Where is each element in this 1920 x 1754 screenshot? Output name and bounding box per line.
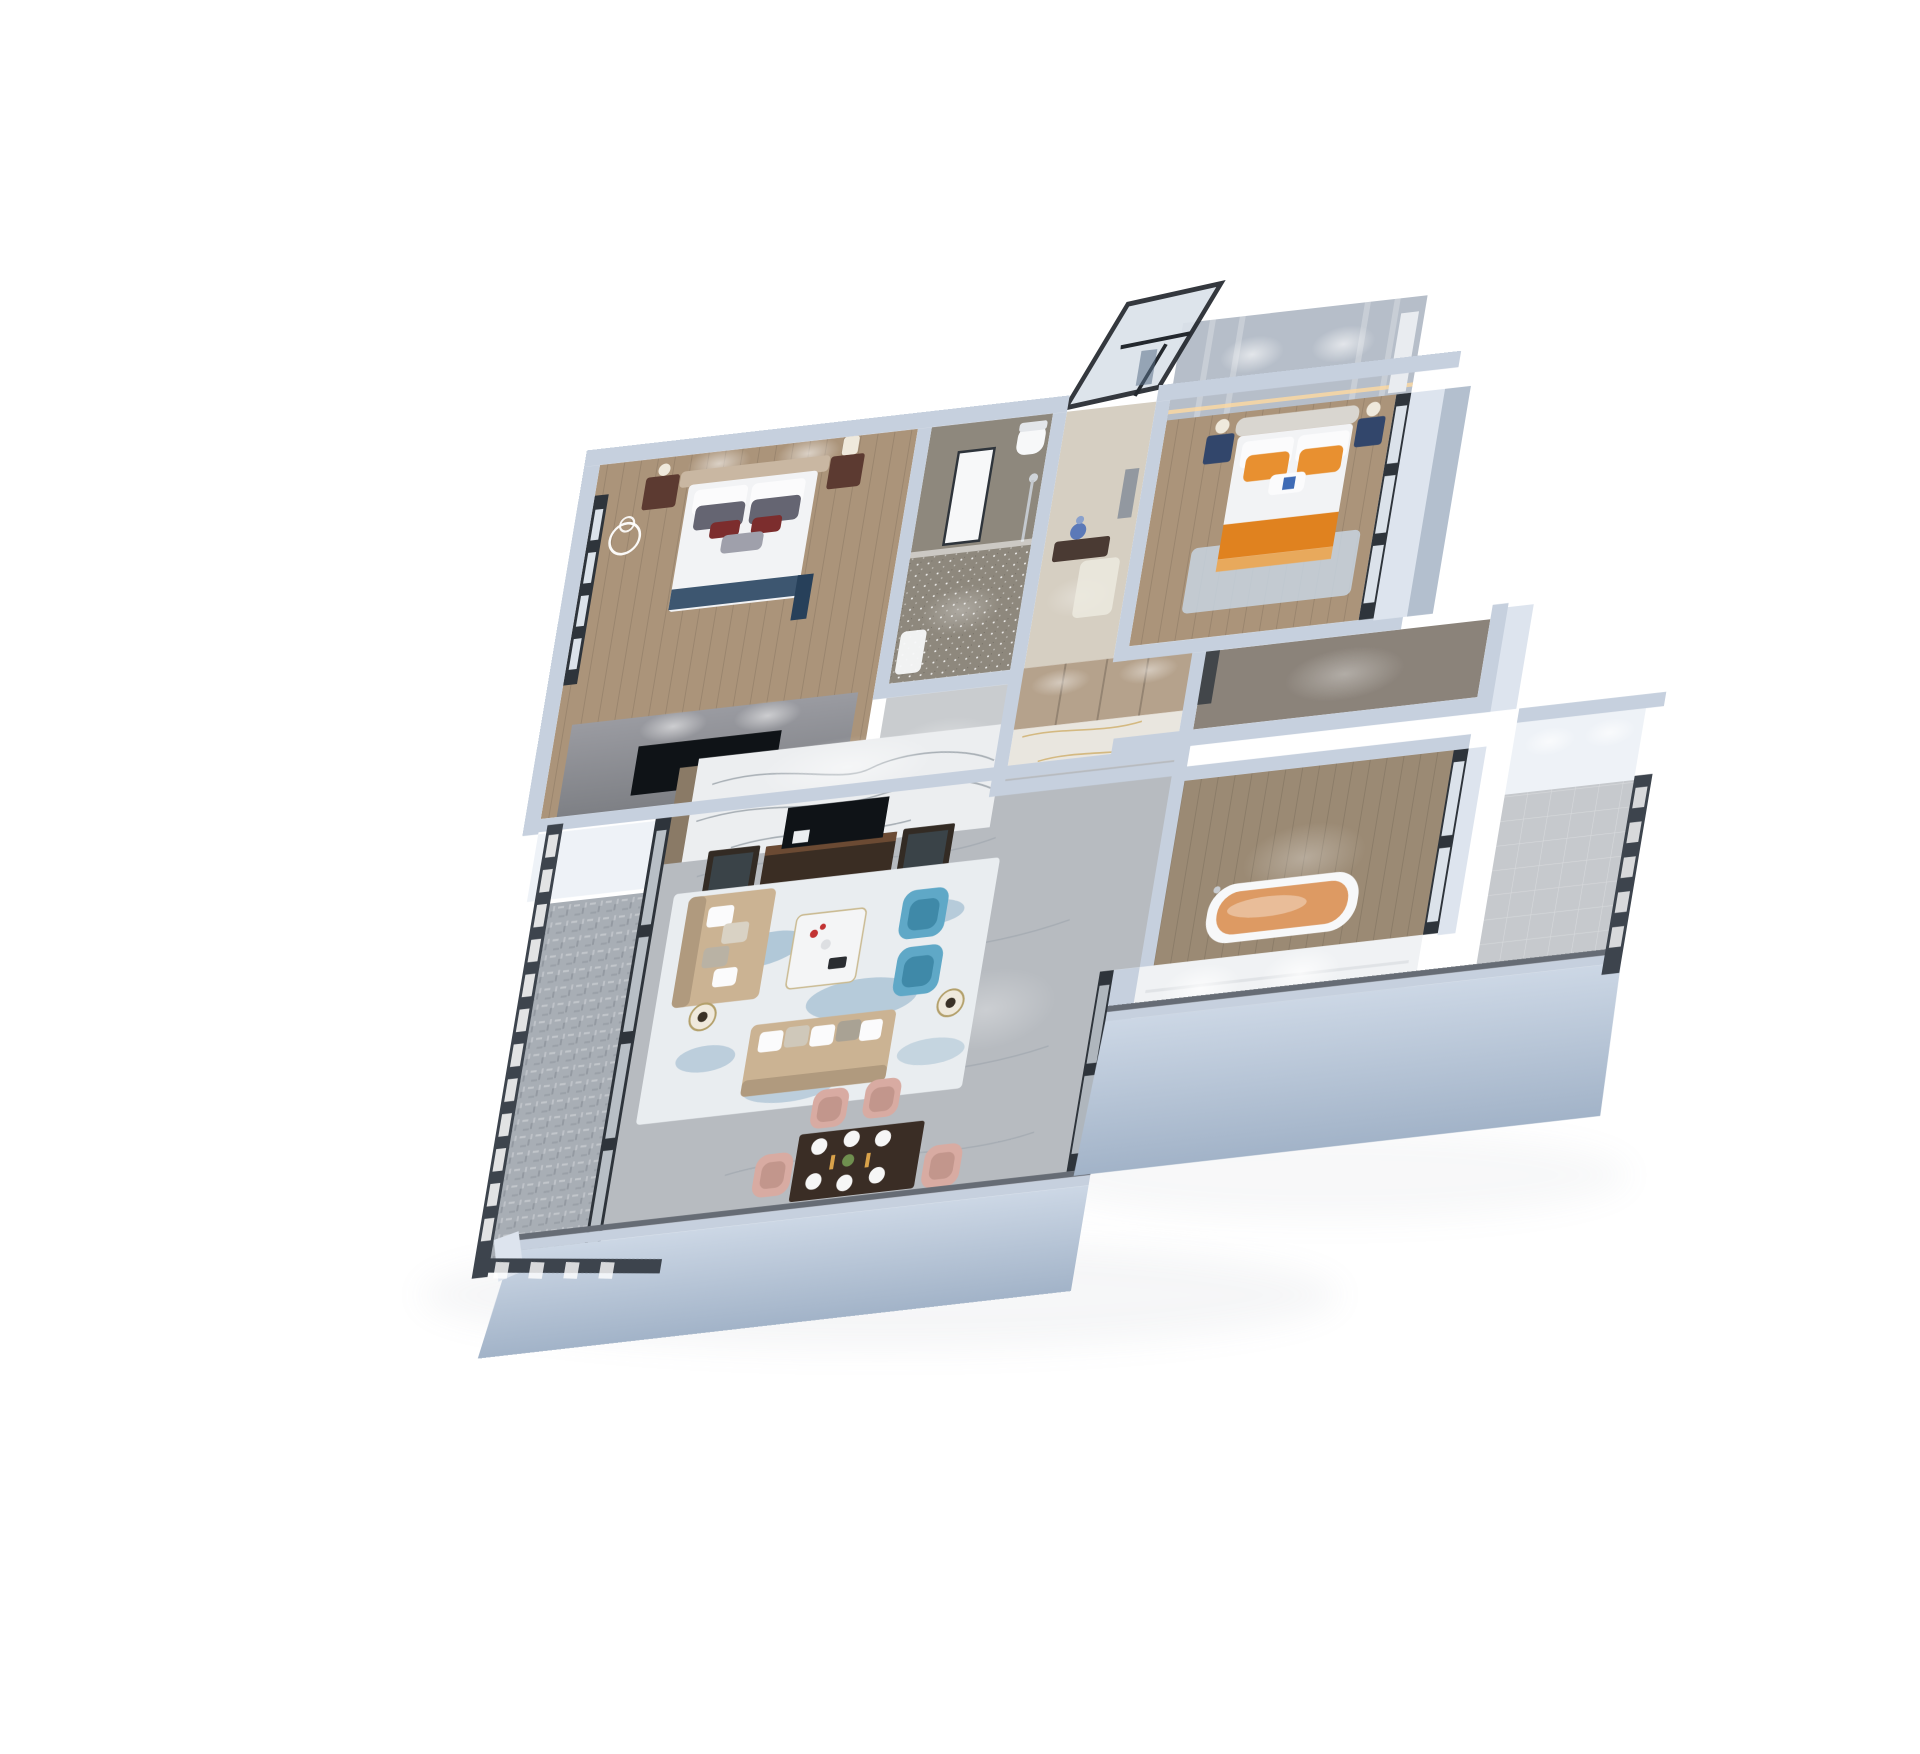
nightstand: [826, 453, 865, 490]
cabinet-glass: [903, 830, 949, 869]
console-decor: [792, 830, 810, 844]
pillow-blue-badge: [1282, 476, 1296, 490]
floorplan-render-canvas: [0, 0, 1920, 1754]
nightstand: [641, 474, 680, 511]
floorplan-3d-svg: [0, 0, 1920, 1754]
nightstand: [1353, 416, 1386, 448]
cabinet-glass: [708, 852, 754, 891]
coffee-table-group: [785, 908, 867, 990]
nightstand: [1202, 433, 1235, 465]
